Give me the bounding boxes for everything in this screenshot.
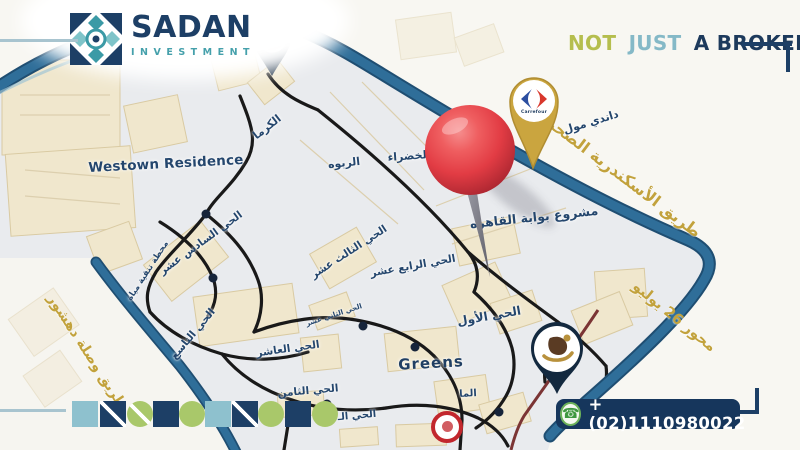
deco-square-navy-slash: [100, 401, 126, 427]
deco-square-navy: [153, 401, 179, 427]
tagline-not: NOT: [568, 31, 616, 55]
corner-bracket-top-right-vertical: [786, 42, 790, 72]
map-label-elma: الما: [459, 388, 477, 400]
phone-number: +(02)1110980022: [588, 395, 745, 433]
red-roundel-marker: [431, 411, 463, 443]
deco-square-navy-slash: [232, 401, 258, 427]
deco-circle-green-slash: [127, 401, 153, 427]
phone-button[interactable]: ☎ +(02)1110980022: [556, 399, 740, 429]
deco-square-lightblue: [205, 401, 231, 427]
edge-dash-bottom-left: [0, 409, 66, 412]
sadan-logo: SADAN INVESTMENT: [70, 13, 255, 65]
landmark-mall-pin: [526, 320, 588, 400]
pushpin-needle: [466, 186, 490, 277]
tagline-just: JUST: [629, 31, 682, 55]
edge-dash-top-left: [0, 39, 78, 42]
logo-name: SADAN: [131, 13, 255, 43]
red-location-pushpin: [415, 96, 545, 290]
deco-square-lightblue: [72, 401, 98, 427]
deco-circle-green: [258, 401, 284, 427]
phone-icon: ☎: [560, 402, 581, 426]
corner-bracket-top-right: [742, 42, 792, 46]
logo-wordmark: SADAN INVESTMENT: [131, 13, 255, 58]
pushpin-head: [425, 105, 515, 195]
deco-circle-green: [179, 401, 205, 427]
advertisement-canvas: Westown Residence الكرما الربوه الخضراء …: [0, 0, 800, 450]
map-label-greens: Greens: [398, 352, 465, 373]
deco-square-navy: [285, 401, 311, 427]
deco-circle-green: [312, 401, 338, 427]
logo-subtitle: INVESTMENT: [131, 47, 255, 58]
